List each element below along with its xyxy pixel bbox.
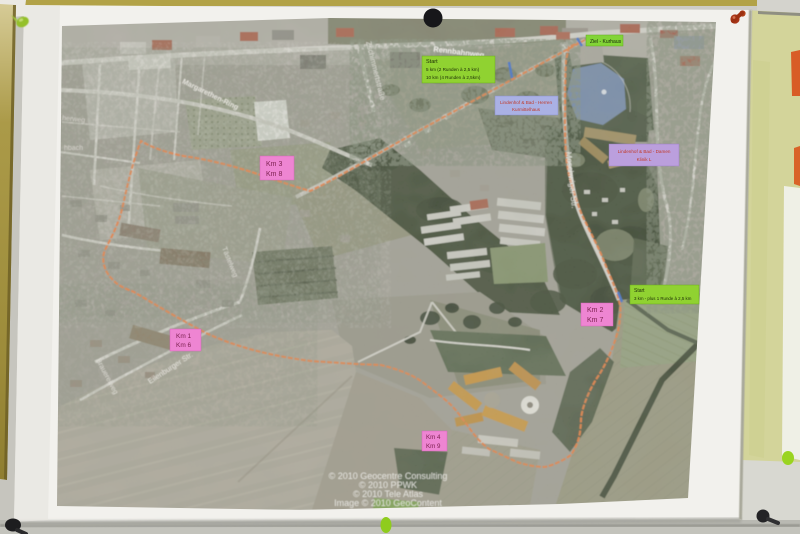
svg-text:Km 8: Km 8 (266, 171, 282, 178)
svg-text:Ziel - Kurhaus: Ziel - Kurhaus (590, 39, 622, 45)
svg-text:Km 6: Km 6 (176, 342, 192, 349)
svg-text:Klinik L: Klinik L (637, 157, 652, 162)
svg-text:Start: Start (426, 59, 438, 65)
svg-text:Start: Start (634, 288, 645, 294)
svg-text:Km 7: Km 7 (587, 317, 603, 324)
svg-text:hbach: hbach (64, 145, 83, 152)
svg-text:10 km (4 Runden à 2,5km): 10 km (4 Runden à 2,5km) (426, 75, 481, 80)
svg-text:5 km (2 Runden à 2,5 km): 5 km (2 Runden à 2,5 km) (426, 67, 480, 72)
svg-text:Kurmittelhaus: Kurmittelhaus (512, 107, 541, 112)
svg-text:Km 9: Km 9 (426, 443, 441, 450)
svg-text:Lindenhof & Bad - Herren: Lindenhof & Bad - Herren (500, 100, 553, 105)
svg-text:Km 3: Km 3 (266, 161, 282, 168)
svg-text:Lindenhof & Bad - Damen: Lindenhof & Bad - Damen (618, 149, 671, 154)
svg-text:Km 2: Km 2 (587, 307, 603, 314)
svg-text:Km 4: Km 4 (426, 434, 441, 441)
svg-text:Km 1: Km 1 (176, 333, 192, 340)
svg-text:3 km - plus 1 Runde à 2,5 km: 3 km - plus 1 Runde à 2,5 km (634, 296, 692, 301)
svg-text:Image © 2010 GeoContent: Image © 2010 GeoContent (334, 498, 442, 508)
